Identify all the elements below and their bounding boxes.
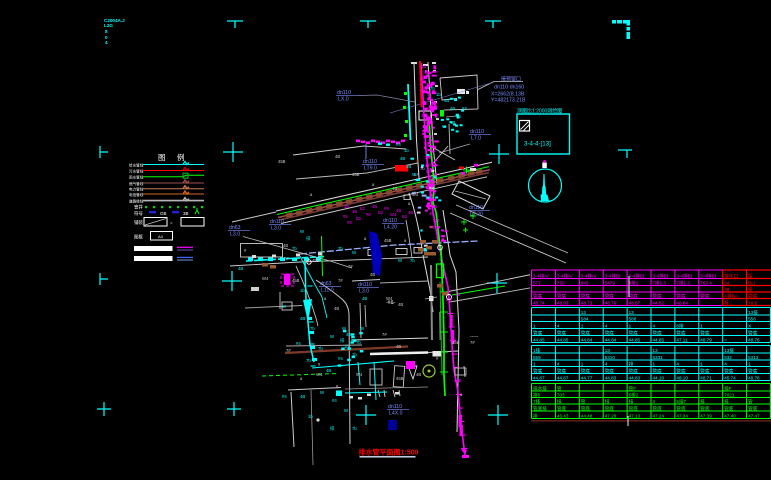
- svg-text:48.71: 48.71: [700, 375, 712, 380]
- svg-text:8排: 8排: [676, 322, 684, 329]
- svg-text:5排2: 5排2: [629, 391, 639, 398]
- svg-text:#2: #2: [430, 225, 435, 230]
- svg-text:48.76: 48.76: [748, 337, 760, 342]
- svg-text:铺装: 铺装: [134, 219, 143, 226]
- svg-text:4B: 4B: [283, 243, 288, 248]
- svg-text:排水管平面图1:500: 排水管平面图1:500: [359, 448, 419, 457]
- svg-text:4排1: 4排1: [629, 279, 639, 286]
- svg-text:#8: #8: [343, 214, 348, 219]
- svg-text:1: 1: [653, 361, 656, 366]
- svg-text:管底: 管底: [581, 292, 591, 299]
- svg-text:管底: 管底: [676, 367, 686, 374]
- svg-text:4B: 4B: [416, 372, 421, 377]
- svg-text:48.74: 48.74: [533, 300, 545, 305]
- svg-text:4: 4: [557, 323, 560, 328]
- svg-text:管底: 管底: [581, 329, 591, 336]
- svg-text:765: 765: [557, 280, 565, 285]
- svg-text:L7.0: L7.0: [471, 136, 481, 142]
- svg-text:管: 管: [557, 385, 562, 392]
- svg-text:4B: 4B: [326, 368, 331, 373]
- svg-text:4B: 4B: [455, 292, 461, 297]
- svg-text:7#: 7#: [382, 332, 387, 337]
- svg-text:管底: 管底: [557, 329, 567, 336]
- svg-text:#8: #8: [347, 220, 352, 225]
- svg-text:4: 4: [653, 399, 656, 404]
- svg-text:48.93: 48.93: [557, 300, 569, 305]
- svg-text:7#: 7#: [286, 348, 291, 353]
- svg-text:管底: 管底: [724, 367, 734, 374]
- svg-text:#4: #4: [296, 341, 301, 346]
- svg-text:48.76: 48.76: [605, 300, 617, 305]
- svg-text:7#: 7#: [284, 256, 289, 261]
- svg-text:排: 排: [700, 398, 705, 405]
- svg-text:W4: W4: [316, 372, 323, 377]
- svg-text:48.79: 48.79: [700, 337, 712, 342]
- svg-text:47.34: 47.34: [676, 413, 688, 418]
- svg-text:排: 排: [330, 425, 335, 432]
- svg-text:=: =: [170, 220, 173, 225]
- svg-text:管底: 管底: [533, 367, 543, 374]
- svg-text:7b: 7b: [430, 86, 435, 91]
- svg-text:47.24: 47.24: [653, 413, 665, 418]
- svg-text:#4: #4: [338, 356, 343, 361]
- svg-text:44.83: 44.83: [629, 375, 641, 380]
- svg-text:1b: 1b: [404, 148, 409, 153]
- svg-text:管底: 管底: [653, 367, 663, 374]
- svg-text:4B: 4B: [300, 316, 305, 321]
- svg-text:管: 管: [581, 398, 586, 405]
- svg-text:#4: #4: [396, 142, 401, 147]
- svg-text:4B: 4B: [370, 272, 375, 277]
- svg-text:4B: 4B: [238, 266, 243, 271]
- svg-text:管底: 管底: [605, 367, 615, 374]
- svg-text:45B: 45B: [278, 159, 286, 164]
- svg-text:排: 排: [306, 235, 311, 242]
- svg-text:管底: 管底: [557, 292, 567, 299]
- svg-text:电力管线: 电力管线: [129, 187, 144, 192]
- svg-text:1: 1: [748, 361, 751, 366]
- svg-text:1b: 1b: [436, 92, 441, 97]
- svg-text:管底: 管底: [724, 405, 734, 412]
- svg-text:3-4排B(: 3-4排B(: [676, 272, 692, 279]
- svg-text:L7.20: L7.20: [470, 212, 483, 218]
- svg-text:4: 4: [105, 40, 108, 45]
- svg-text:A排BA: A排BA: [724, 292, 739, 299]
- svg-text:1: 1: [581, 361, 584, 366]
- svg-text:703: 703: [557, 392, 565, 397]
- svg-text:1b: 1b: [300, 288, 305, 293]
- svg-text:4B: 4B: [352, 209, 357, 214]
- svg-text:管底: 管底: [653, 405, 663, 412]
- svg-text:5479: 5479: [605, 280, 616, 285]
- svg-text:排: 排: [340, 337, 345, 344]
- svg-text:48.73: 48.73: [581, 300, 593, 305]
- svg-text:#8: #8: [366, 212, 371, 217]
- svg-text:管底: 管底: [629, 292, 639, 299]
- svg-text:4B: 4B: [334, 306, 339, 311]
- svg-text:588: 588: [629, 316, 637, 321]
- svg-text:13排: 13排: [724, 347, 734, 354]
- svg-text:3-4排B(: 3-4排B(: [700, 272, 716, 279]
- svg-text:排水口: 排水口: [724, 272, 738, 279]
- svg-text:LX.0: LX.0: [338, 97, 349, 103]
- svg-text:7b: 7b: [318, 346, 323, 351]
- svg-text:例: 例: [177, 152, 185, 162]
- svg-text:排: 排: [557, 398, 562, 405]
- svg-text:44.84: 44.84: [605, 337, 617, 342]
- svg-text:7b: 7b: [352, 426, 357, 431]
- svg-text:7排1.3: 7排1.3: [653, 279, 667, 286]
- svg-text:管底: 管底: [700, 292, 710, 299]
- svg-text:3-4排A(: 3-4排A(: [533, 272, 549, 279]
- svg-text:管底: 管底: [676, 329, 686, 336]
- svg-text:L4.20: L4.20: [384, 225, 397, 231]
- svg-text:图框: 图框: [134, 234, 143, 241]
- svg-text:排: 排: [629, 360, 634, 367]
- svg-text:1: 1: [700, 323, 703, 328]
- svg-text:7排: 7排: [533, 398, 541, 405]
- svg-text:排: 排: [748, 286, 753, 293]
- svg-text:排: 排: [533, 412, 538, 419]
- svg-text:管底: 管底: [557, 367, 567, 374]
- svg-text:38: 38: [724, 287, 730, 292]
- svg-text:管底: 管底: [605, 292, 615, 299]
- svg-text:管底: 管底: [533, 292, 543, 299]
- svg-text:1: 1: [581, 323, 584, 328]
- svg-text:7b: 7b: [356, 340, 361, 345]
- svg-text:管底: 管底: [748, 329, 758, 336]
- svg-text:GB: GB: [160, 211, 167, 216]
- svg-text:4: 4: [724, 361, 727, 366]
- svg-text:管底: 管底: [629, 367, 639, 374]
- svg-text:44.83: 44.83: [605, 375, 617, 380]
- svg-text:45B: 45B: [452, 340, 460, 345]
- svg-text:3-4排A(: 3-4排A(: [581, 272, 597, 279]
- svg-text:管底: 管底: [629, 329, 639, 336]
- svg-text:532: 532: [724, 355, 732, 360]
- svg-text:污水管线: 污水管线: [129, 169, 144, 174]
- svg-text:8: 8: [105, 29, 108, 34]
- svg-text:47.40: 47.40: [724, 413, 736, 418]
- svg-text:燃气管线: 燃气管线: [129, 181, 144, 186]
- svg-text:排: 排: [724, 299, 729, 306]
- svg-text:3-4排B(: 3-4排B(: [629, 272, 645, 279]
- svg-text:管底排: 管底排: [533, 405, 547, 412]
- svg-text:4B: 4B: [400, 156, 405, 161]
- svg-text:45B: 45B: [384, 238, 392, 243]
- svg-text:45.74: 45.74: [724, 375, 736, 380]
- svg-text:4B: 4B: [362, 296, 367, 301]
- svg-text:=: =: [724, 337, 727, 342]
- svg-text:接: 接: [748, 272, 753, 279]
- svg-text:44.82: 44.82: [653, 300, 665, 305]
- svg-text:5310: 5310: [605, 355, 616, 360]
- svg-text:W4: W4: [433, 218, 440, 223]
- svg-text:B2: B2: [356, 216, 362, 221]
- svg-text:7b: 7b: [338, 246, 343, 251]
- svg-text:45B: 45B: [352, 172, 360, 177]
- svg-text:管底: 管底: [676, 405, 686, 412]
- svg-text:管底: 管底: [605, 405, 615, 412]
- svg-text:584: 584: [581, 316, 589, 321]
- svg-text:47.28: 47.28: [605, 413, 617, 418]
- svg-text:4B: 4B: [444, 98, 449, 103]
- svg-text:管底: 管底: [700, 367, 710, 374]
- svg-text:44.85: 44.85: [533, 337, 545, 342]
- svg-text:L#: L#: [414, 172, 419, 177]
- svg-text:排: 排: [629, 398, 634, 405]
- svg-text:48.10: 48.10: [676, 375, 688, 380]
- svg-text:4B: 4B: [396, 208, 401, 213]
- svg-text:13: 13: [653, 348, 659, 353]
- svg-text:1b: 1b: [308, 414, 313, 419]
- svg-text:+8.6: +8.6: [748, 300, 758, 305]
- svg-text:DLI: DLI: [748, 280, 755, 285]
- svg-text:排: 排: [605, 398, 610, 405]
- svg-text:44.10: 44.10: [653, 375, 665, 380]
- svg-text:1: 1: [533, 361, 536, 366]
- svg-text:4B: 4B: [406, 164, 411, 169]
- svg-text:3-4排B(: 3-4排B(: [653, 272, 669, 279]
- svg-text:7b: 7b: [292, 246, 297, 251]
- svg-text:13: 13: [605, 348, 611, 353]
- svg-text:管底: 管底: [629, 405, 639, 412]
- svg-text:道路缘线: 道路缘线: [129, 199, 144, 204]
- svg-text:A4: A4: [158, 234, 164, 239]
- svg-text:3-4排B(: 3-4排B(: [605, 272, 621, 279]
- svg-text:7排1.2: 7排1.2: [676, 279, 690, 286]
- svg-text:5331: 5331: [653, 355, 664, 360]
- svg-text:47.13: 47.13: [629, 413, 641, 418]
- svg-text:577: 577: [533, 280, 541, 285]
- svg-text:7#: 7#: [348, 264, 353, 269]
- svg-text:4B: 4B: [408, 210, 413, 215]
- svg-text:排水排: 排水排: [533, 385, 547, 392]
- svg-text:管底: 管底: [748, 405, 758, 412]
- svg-text:管底: 管底: [653, 329, 663, 336]
- svg-text:管底: 管底: [748, 292, 758, 299]
- svg-text:5313: 5313: [748, 355, 759, 360]
- svg-text:排F: 排F: [724, 385, 732, 392]
- svg-text:X=2662(8.13B: X=2662(8.13B: [491, 91, 525, 97]
- svg-text:L3.0: L3.0: [230, 232, 240, 238]
- svg-text:1排: 1排: [533, 347, 541, 354]
- svg-text:46.43: 46.43: [557, 413, 569, 418]
- svg-text:X: X: [748, 323, 751, 328]
- svg-text:44.84: 44.84: [581, 337, 593, 342]
- svg-text:排: 排: [724, 398, 729, 405]
- svg-text:电信管线: 电信管线: [129, 192, 144, 197]
- svg-text:管底: 管底: [653, 292, 663, 299]
- svg-text:管底: 管底: [557, 405, 567, 412]
- svg-text:64: 64: [724, 280, 730, 285]
- svg-text:4B: 4B: [335, 154, 340, 159]
- svg-text:给水管线: 给水管线: [129, 163, 144, 168]
- svg-text:#8: #8: [384, 206, 389, 211]
- svg-text:4B: 4B: [421, 64, 426, 69]
- svg-text:排5: 排5: [533, 391, 541, 398]
- svg-text:W4: W4: [356, 372, 363, 377]
- svg-text:L3.0: L3.0: [271, 226, 281, 232]
- svg-text:48.87: 48.87: [629, 300, 641, 305]
- svg-text:W4: W4: [262, 276, 269, 281]
- svg-text:4B: 4B: [450, 106, 455, 111]
- svg-text:762.4: 762.4: [700, 280, 712, 285]
- svg-text:4B: 4B: [372, 204, 377, 209]
- svg-text:W4: W4: [412, 192, 419, 197]
- svg-text:dn110·dn160: dn110·dn160: [494, 85, 524, 91]
- svg-text:48.78: 48.78: [748, 375, 760, 380]
- svg-text:4: 4: [653, 323, 656, 328]
- svg-text:4B: 4B: [429, 211, 434, 216]
- svg-text:管F: 管F: [629, 385, 637, 392]
- svg-text:管底: 管底: [700, 405, 710, 412]
- svg-text:7021: 7021: [724, 392, 735, 397]
- svg-text:#4: #4: [332, 398, 337, 403]
- svg-text:44.77: 44.77: [581, 375, 593, 380]
- svg-text:44.85: 44.85: [557, 337, 569, 342]
- svg-text:47.11: 47.11: [676, 337, 688, 342]
- svg-text:雨水管线: 雨水管线: [129, 175, 144, 180]
- svg-text:管底: 管底: [581, 405, 591, 412]
- svg-text:LT9.0: LT9.0: [364, 166, 377, 172]
- svg-text:5排7: 5排7: [676, 398, 686, 405]
- svg-text:4: 4: [605, 323, 608, 328]
- svg-text:L2G: L2G: [104, 23, 113, 28]
- svg-text:13排: 13排: [748, 309, 758, 316]
- svg-text:7b: 7b: [310, 326, 315, 331]
- svg-text:559: 559: [533, 355, 541, 360]
- svg-text:B8: B8: [428, 134, 434, 139]
- svg-text:48.84: 48.84: [676, 300, 688, 305]
- svg-text:7#: 7#: [338, 278, 343, 283]
- svg-text:-#&-: -#&-: [386, 300, 396, 306]
- svg-text:13: 13: [629, 310, 635, 315]
- svg-text:管底: 管底: [676, 292, 686, 299]
- svg-text:45B: 45B: [292, 278, 300, 283]
- svg-text:4B: 4B: [392, 186, 397, 191]
- svg-text:4B: 4B: [344, 204, 349, 209]
- svg-text:管: 管: [748, 398, 753, 405]
- svg-text:7b: 7b: [410, 258, 415, 263]
- svg-text:管底: 管底: [748, 367, 758, 374]
- svg-text:管底: 管底: [700, 329, 710, 336]
- svg-text:44.85: 44.85: [629, 337, 641, 342]
- svg-text:44.87: 44.87: [533, 375, 545, 380]
- svg-text:#4: #4: [282, 394, 287, 399]
- svg-text:44.87: 44.87: [557, 375, 569, 380]
- svg-text:4B: 4B: [396, 344, 401, 349]
- svg-text:1: 1: [629, 323, 632, 328]
- svg-text:1: 1: [700, 361, 703, 366]
- svg-text:Y=482173.21B: Y=482173.21B: [491, 98, 526, 104]
- svg-text:47.39: 47.39: [700, 413, 712, 418]
- svg-text:45B: 45B: [312, 258, 320, 263]
- svg-text:L4X.0: L4X.0: [389, 411, 403, 417]
- svg-text:管底: 管底: [581, 367, 591, 374]
- svg-text:7b: 7b: [420, 166, 425, 171]
- svg-text:7b: 7b: [306, 358, 311, 363]
- svg-text:44.48: 44.48: [581, 413, 593, 418]
- svg-text:B2: B2: [402, 214, 408, 219]
- svg-text:图: 图: [158, 153, 166, 162]
- svg-text:4: 4: [676, 361, 679, 366]
- svg-text:4B: 4B: [300, 394, 305, 399]
- svg-text:符号: 符号: [134, 210, 143, 217]
- svg-text:4X: 4X: [456, 378, 462, 383]
- svg-text:管底: 管底: [605, 329, 615, 336]
- svg-text:556: 556: [748, 316, 756, 321]
- svg-text:L11.0: L11.0: [321, 288, 334, 294]
- svg-text:管底: 管底: [533, 329, 543, 336]
- svg-text:13: 13: [581, 310, 587, 315]
- svg-text:3B: 3B: [183, 211, 189, 216]
- svg-text:B2: B2: [360, 206, 366, 211]
- svg-text:1: 1: [533, 323, 536, 328]
- svg-text:4: 4: [557, 361, 560, 366]
- svg-text:-----: -----: [470, 334, 479, 340]
- svg-text:4B: 4B: [346, 332, 351, 337]
- svg-text:4B: 4B: [398, 302, 403, 307]
- svg-text:3-4排A(: 3-4排A(: [557, 272, 573, 279]
- svg-text:B2: B2: [378, 210, 384, 215]
- svg-text:45B: 45B: [396, 376, 404, 381]
- svg-text:L3.0: L3.0: [359, 289, 369, 295]
- svg-text:47.47: 47.47: [748, 413, 760, 418]
- svg-text:4: 4: [605, 361, 608, 366]
- svg-text:942: 942: [581, 280, 589, 285]
- svg-text:7#: 7#: [470, 340, 475, 345]
- svg-text:窨井: 窨井: [134, 204, 143, 211]
- svg-text:3-4-4-[13]: 3-4-4-[13]: [524, 141, 551, 148]
- svg-text:44.85: 44.85: [653, 337, 665, 342]
